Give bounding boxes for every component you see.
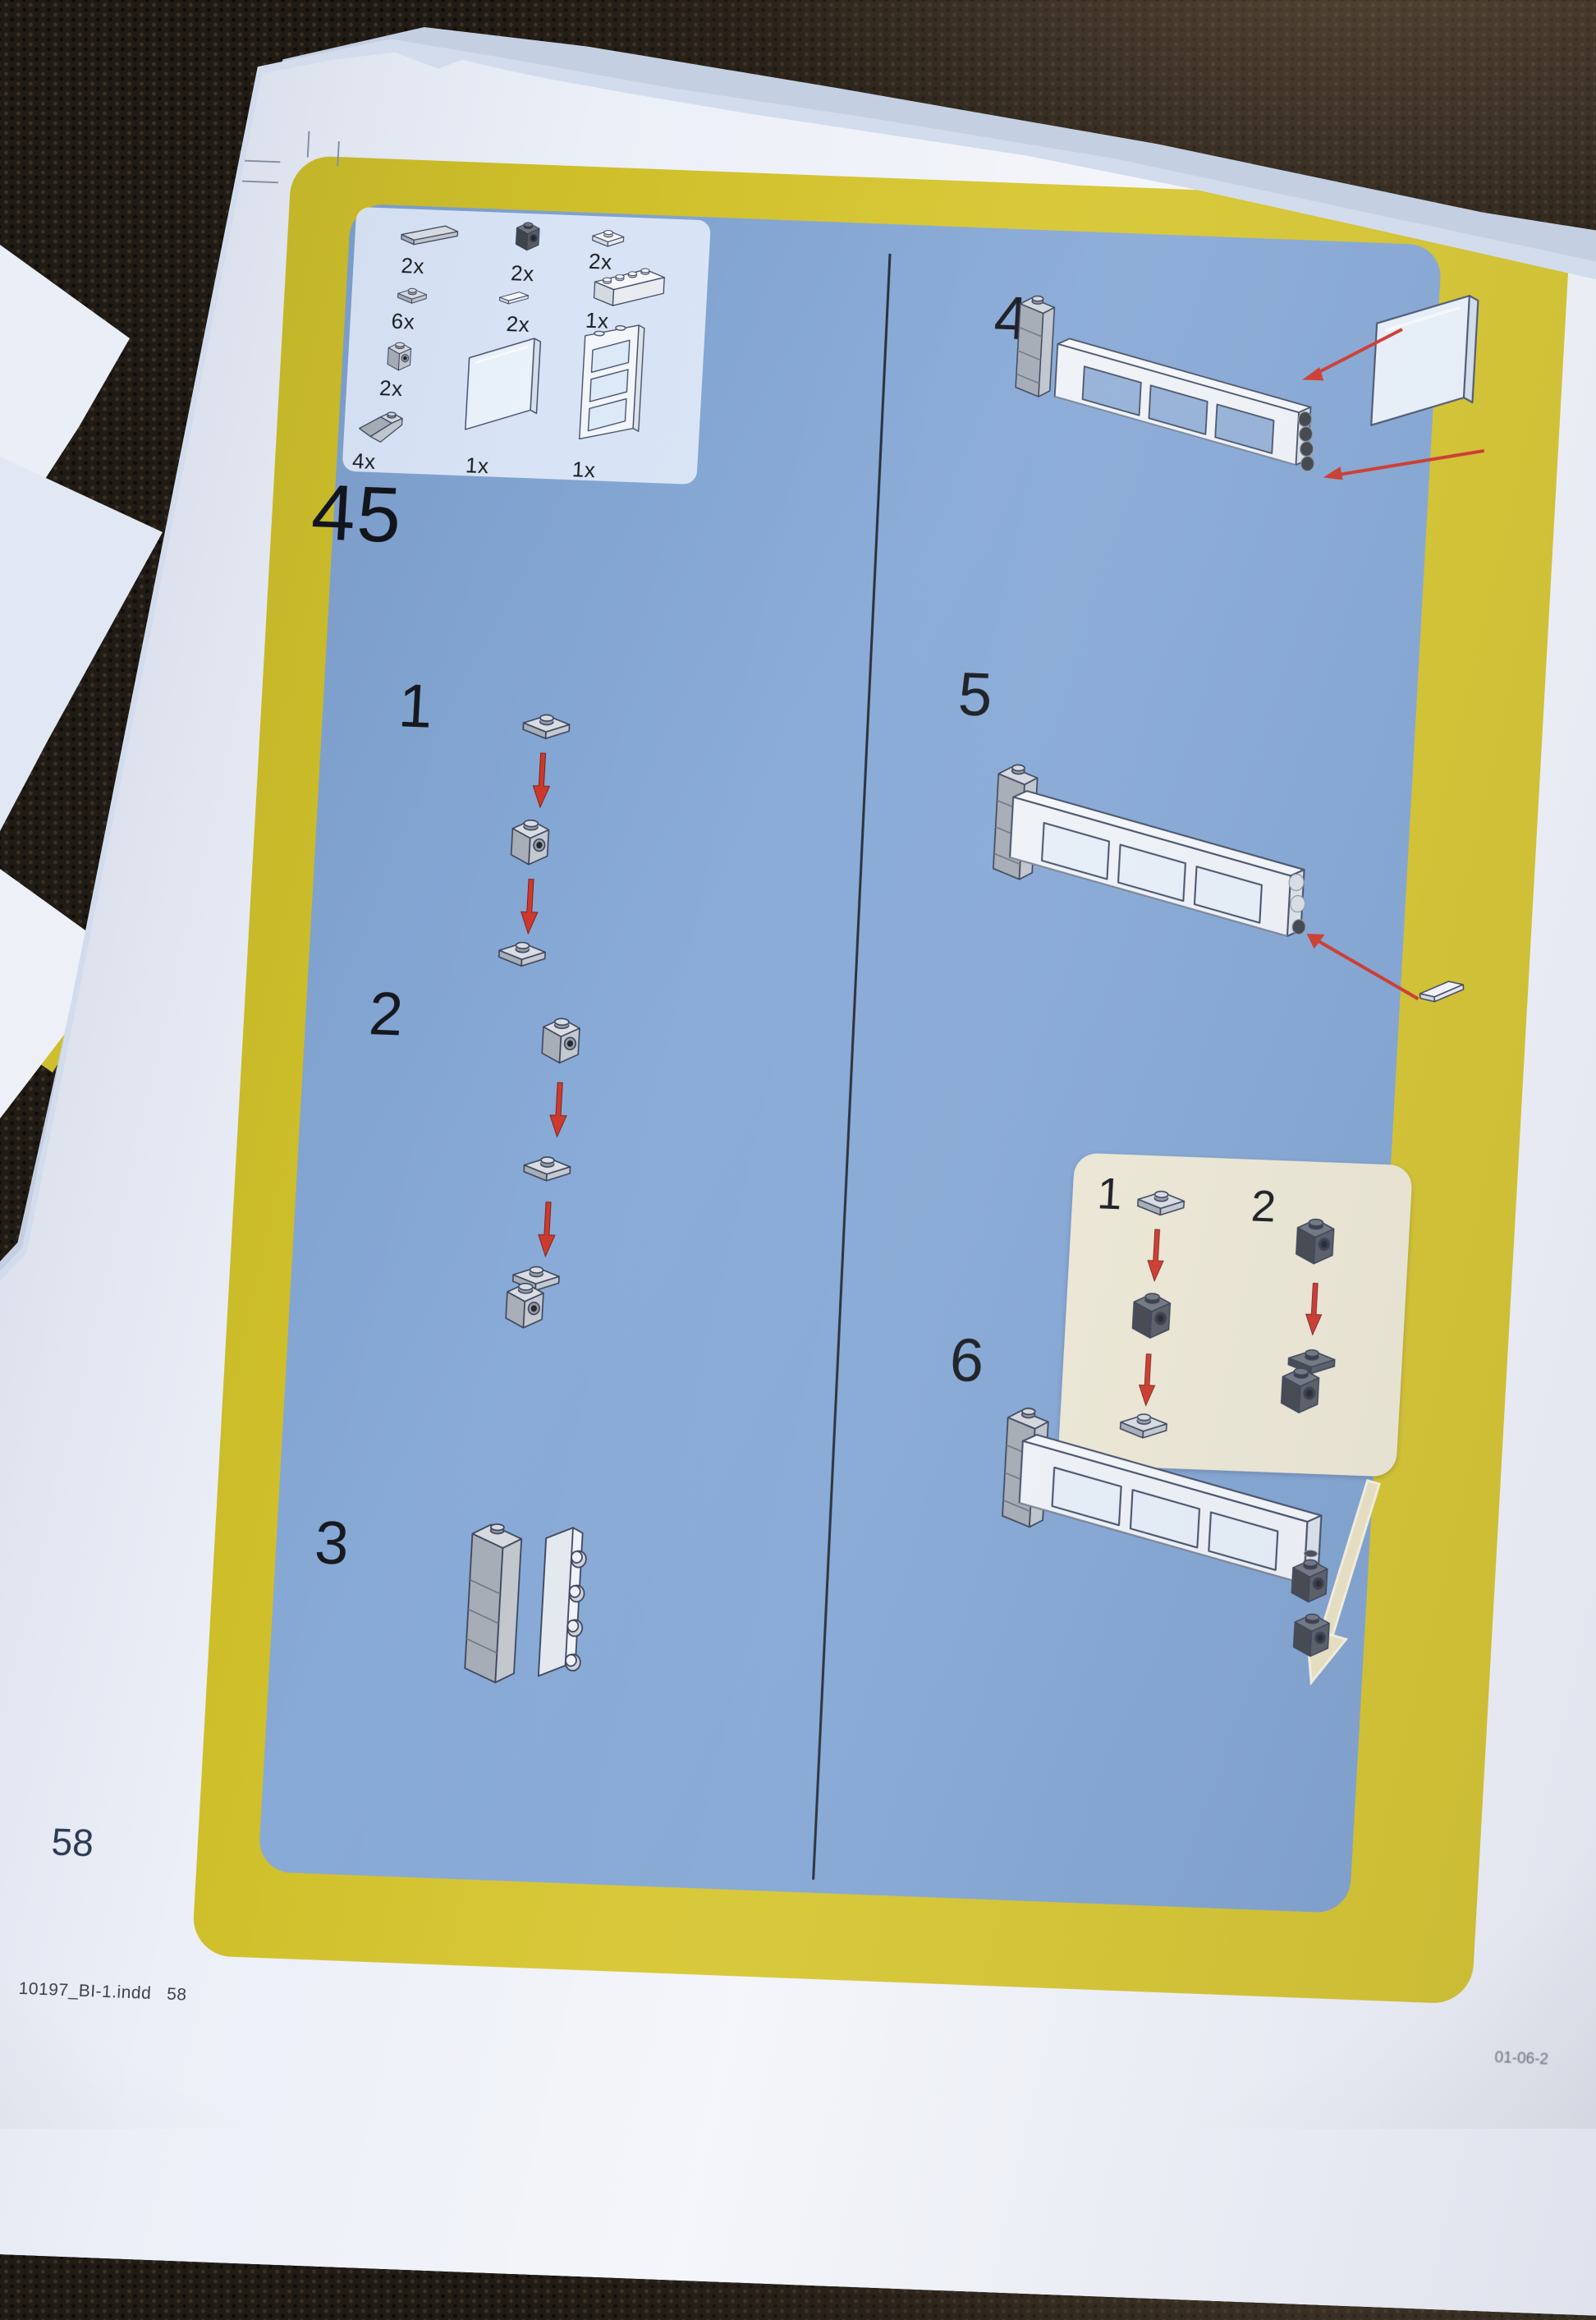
crop-mark bbox=[242, 181, 278, 184]
step-label-2: 2 bbox=[368, 983, 405, 1045]
part-qty: 1x bbox=[465, 453, 489, 479]
step-number-45: 45 bbox=[310, 473, 405, 555]
crop-mark bbox=[244, 160, 280, 163]
step-diagram-3 bbox=[457, 1504, 633, 1715]
crop-mark bbox=[1522, 185, 1525, 213]
window-frame-icon bbox=[563, 315, 654, 452]
red-arrow-icon bbox=[1304, 934, 1422, 999]
manual-page: 2x 2x 2x 6x 2x 1x 2x 1x bbox=[0, 0, 1596, 2320]
glass-panel-icon bbox=[1371, 292, 1478, 429]
step-diagram-2 bbox=[453, 1007, 669, 1359]
part-qty: 2x bbox=[378, 375, 403, 402]
step-diagram-6 bbox=[974, 1381, 1507, 1835]
footer-filename: 10197_BI-1.indd 58 bbox=[18, 1979, 187, 2005]
footer-date: 01-06-2 bbox=[1494, 2049, 1549, 2069]
tile-1x2-icon bbox=[494, 288, 534, 310]
step-diagram-1 bbox=[451, 701, 646, 978]
brick-1x4-icon bbox=[585, 264, 674, 315]
step-label-3: 3 bbox=[313, 1512, 350, 1573]
parts-box: 2x 2x 2x 6x 2x 1x 2x 1x bbox=[342, 207, 711, 485]
tile-1x4-icon bbox=[391, 222, 466, 252]
brick-side-stud-icon bbox=[510, 218, 544, 255]
page-number: 58 bbox=[50, 1819, 94, 1865]
part-qty: 6x bbox=[391, 309, 415, 335]
step-label-1: 1 bbox=[397, 675, 434, 737]
part-qty: 2x bbox=[401, 253, 425, 279]
step-label-6: 6 bbox=[948, 1330, 985, 1391]
part-qty: 2x bbox=[510, 260, 534, 287]
part-qty: 1x bbox=[571, 457, 596, 483]
photo-of-lego-manual: { "colors": { "page_blue": "#84a6d3", "b… bbox=[0, 0, 1596, 2129]
crop-mark bbox=[307, 131, 310, 158]
step-diagram-5 bbox=[982, 721, 1507, 1027]
slope-brick-icon bbox=[353, 406, 415, 449]
brick-side-stud-icon bbox=[382, 338, 416, 375]
tile-1x2-icon bbox=[1419, 980, 1465, 1003]
step-label-5: 5 bbox=[956, 664, 993, 726]
plate-icon bbox=[392, 284, 433, 310]
glass-panel-icon bbox=[454, 331, 553, 443]
step-diagram-4 bbox=[1004, 280, 1527, 554]
